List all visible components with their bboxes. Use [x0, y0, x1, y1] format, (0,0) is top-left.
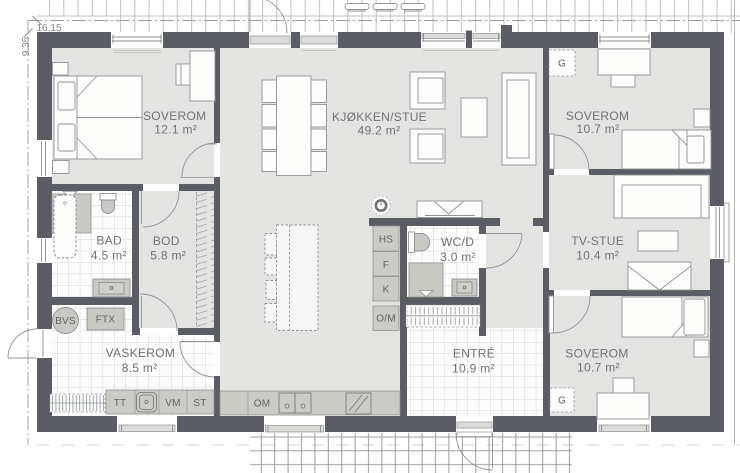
svg-text:10.7 m²: 10.7 m² — [577, 361, 620, 375]
svg-text:8.5 m²: 8.5 m² — [122, 361, 158, 375]
svg-text:10.9 m²: 10.9 m² — [452, 362, 495, 376]
svg-text:5.8 m²: 5.8 m² — [150, 249, 186, 263]
svg-text:G: G — [558, 59, 566, 70]
svg-text:KJØKKEN/STUE: KJØKKEN/STUE — [332, 110, 427, 124]
svg-text:49.2 m²: 49.2 m² — [358, 124, 401, 138]
svg-text:BAD: BAD — [96, 234, 122, 248]
svg-text:TV-STUE: TV-STUE — [571, 234, 624, 248]
svg-text:WC/D: WC/D — [441, 235, 474, 249]
svg-text:12.1 m²: 12.1 m² — [154, 123, 197, 137]
svg-text:ST: ST — [193, 398, 206, 409]
svg-text:HS: HS — [379, 235, 393, 246]
svg-text:SOVEROM: SOVEROM — [566, 109, 629, 123]
svg-text:4.5 m²: 4.5 m² — [91, 249, 127, 263]
svg-text:OM: OM — [254, 399, 271, 410]
svg-text:SOVEROM: SOVEROM — [565, 346, 628, 360]
svg-text:O/M: O/M — [376, 314, 396, 325]
svg-text:VM: VM — [165, 398, 180, 409]
svg-text:VASKEROM: VASKEROM — [106, 346, 176, 360]
svg-text:FTX: FTX — [96, 315, 116, 326]
svg-text:G: G — [558, 396, 566, 407]
svg-text:TT: TT — [114, 398, 127, 409]
svg-text:F: F — [383, 260, 389, 271]
svg-text:ENTRÉ: ENTRÉ — [453, 346, 495, 361]
svg-text:SOVEROM: SOVEROM — [143, 109, 206, 123]
svg-text:10.7 m²: 10.7 m² — [577, 122, 620, 136]
svg-text:K: K — [383, 285, 390, 296]
svg-text:3.0 m²: 3.0 m² — [440, 250, 476, 264]
svg-text:9.35: 9.35 — [21, 36, 32, 56]
svg-text:10.4 m²: 10.4 m² — [576, 249, 619, 263]
svg-text:BOD: BOD — [153, 234, 180, 248]
svg-text:BVS: BVS — [55, 316, 76, 327]
